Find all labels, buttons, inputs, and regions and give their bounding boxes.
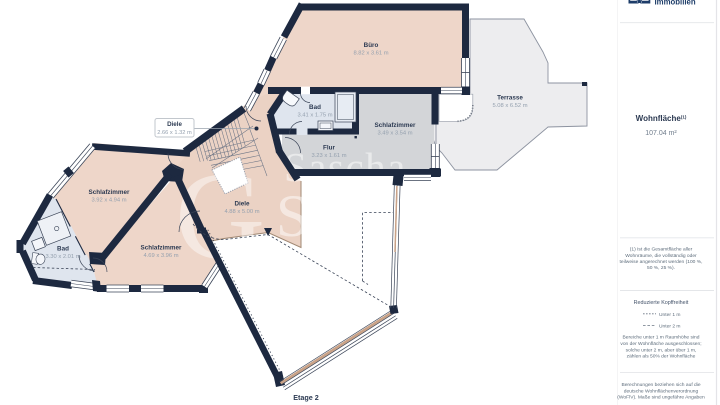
svg-text:Diele: Diele: [167, 121, 182, 128]
svg-text:zählen als 50% der Wohnfläche: zählen als 50% der Wohnfläche: [627, 354, 696, 360]
svg-text:Unter 1 m: Unter 1 m: [659, 312, 680, 318]
svg-text:teilweise angerechnet werden (: teilweise angerechnet werden (100 %,: [620, 259, 703, 265]
svg-text:Etage 2: Etage 2: [293, 393, 319, 402]
svg-text:Immobilien: Immobilien: [655, 0, 696, 6]
svg-text:S: S: [276, 183, 309, 249]
svg-text:Wohnräume, die vollständig ode: Wohnräume, die vollständig oder: [625, 253, 697, 259]
svg-text:50 %, 25 %).: 50 %, 25 %).: [647, 265, 675, 271]
svg-text:Wohnfläche(1): Wohnfläche(1): [636, 114, 687, 123]
svg-text:Unter 2 m: Unter 2 m: [659, 323, 680, 329]
svg-text:Flur: Flur: [323, 145, 335, 152]
svg-text:Schlafzimmer: Schlafzimmer: [89, 189, 130, 196]
svg-text:Bad: Bad: [57, 246, 69, 253]
svg-text:(WoFlV). Maße sind ungefähre A: (WoFlV). Maße sind ungefähre Angaben: [617, 395, 705, 401]
svg-text:Terrasse: Terrasse: [497, 95, 523, 102]
svg-text:3.23 x 1.61 m: 3.23 x 1.61 m: [311, 153, 346, 159]
svg-text:Bereiche unter 1 m Raumhöhe si: Bereiche unter 1 m Raumhöhe sind: [623, 335, 700, 341]
svg-text:Schlafzimmer: Schlafzimmer: [141, 245, 182, 252]
svg-text:Schlafzimmer: Schlafzimmer: [375, 122, 416, 129]
svg-text:Büro: Büro: [364, 42, 379, 49]
svg-text:4.69 x 3.96 m: 4.69 x 3.96 m: [143, 253, 178, 259]
svg-text:8.82 x 3.61 m: 8.82 x 3.61 m: [353, 51, 388, 57]
svg-text:4.88 x 5.00 m: 4.88 x 5.00 m: [224, 209, 259, 215]
svg-text:Reduzierte Kopffreiheit: Reduzierte Kopffreiheit: [634, 300, 689, 306]
svg-text:von der Wohnfläche ausgeschlos: von der Wohnfläche ausgeschlossen;: [620, 341, 701, 347]
svg-text:3.92 x 4.94 m: 3.92 x 4.94 m: [91, 198, 126, 204]
svg-text:2.66 x 1.32 m: 2.66 x 1.32 m: [157, 130, 192, 136]
svg-text:3.41 x 1.75 m: 3.41 x 1.75 m: [297, 113, 332, 119]
svg-text:5.08 x 6.52 m: 5.08 x 6.52 m: [492, 103, 527, 109]
svg-text:deutsche Wohnflächenverordnung: deutsche Wohnflächenverordnung: [624, 388, 699, 394]
svg-text:3.49 x 3.54 m: 3.49 x 3.54 m: [377, 131, 412, 137]
svg-text:(1) Ist die Gesamtfläche aller: (1) Ist die Gesamtfläche aller: [630, 247, 693, 253]
svg-text:Diele: Diele: [234, 201, 250, 208]
svg-text:3.30 x 2.01 m: 3.30 x 2.01 m: [45, 254, 80, 260]
svg-text:Bad: Bad: [309, 104, 321, 111]
svg-text:solche unter 2 m, aber über 1: solche unter 2 m, aber über 1 m,: [626, 347, 697, 353]
svg-text:107.04 m²: 107.04 m²: [645, 130, 677, 137]
svg-text:Berechnungen beziehen sich auf: Berechnungen beziehen sich auf die: [621, 382, 700, 388]
